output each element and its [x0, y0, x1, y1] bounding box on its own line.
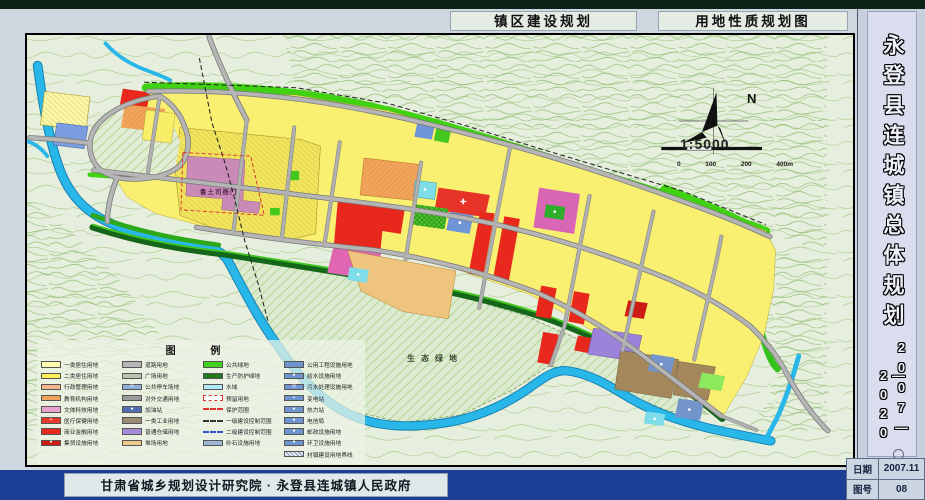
legend-label: 公共绿地 — [226, 360, 249, 369]
legend-column: 公用工程设施用地●给水设施用地◎污水处理设施用地+变电站●热力站●电信局●邮政设… — [284, 359, 361, 460]
legend-swatch: ● — [284, 428, 304, 435]
legend-column: 道路用地广场用地P公共停车场地对外交通用地●加油站一类工业用地普通仓储用地堆场用… — [122, 359, 199, 460]
legend-item: 水域 — [203, 381, 280, 392]
drawing-title-vertical: 永登县连城镇总体规划 — [877, 34, 907, 334]
legend: 图 例 一类居住用地二类居住用地行政管理用地教育机构用地文体科技用地+医疗保健用… — [37, 340, 365, 464]
legend-swatch: P — [122, 384, 142, 391]
legend-title: 图 例 — [41, 342, 361, 357]
legend-label: 道路用地 — [145, 360, 168, 369]
legend-item: 公共绿地 — [203, 359, 280, 370]
legend-item: 道路用地 — [122, 359, 199, 370]
legend-item: ●热力站 — [284, 404, 361, 415]
legend-swatch — [203, 361, 223, 368]
legend-swatch: ◎ — [284, 384, 304, 391]
legend-swatch — [122, 373, 142, 380]
title-box-plan: 镇区建设规划 — [450, 11, 637, 31]
legend-swatch — [41, 384, 61, 391]
north-label: N — [747, 91, 756, 106]
legend-swatch: ● — [284, 417, 304, 424]
legend-swatch — [203, 395, 223, 402]
scale-tick: 200 — [741, 161, 752, 168]
legend-label: 普通仓储用地 — [145, 427, 179, 436]
legend-item: 堆场用地 — [122, 437, 199, 448]
legend-label: 教育机构用地 — [64, 394, 98, 403]
sheet-number-value: 08 — [879, 480, 924, 500]
legend-label: 邮政设施用地 — [307, 427, 341, 436]
legend-label: 集贸设施用地 — [64, 439, 98, 448]
legend-label: 二级建设控制范围 — [226, 427, 272, 436]
legend-item: 商业金融用地 — [41, 426, 118, 437]
legend-label: 环卫设施用地 — [307, 439, 341, 448]
legend-swatch — [203, 408, 223, 410]
legend-item: +变电站 — [284, 393, 361, 404]
planning-map-frame: 鲁土司衙门 生态绿地 N 1:5000 0100200400m 图 例 一类居住… — [25, 33, 855, 467]
legend-label: 村镇建设用地界线 — [307, 450, 353, 459]
legend-label: 对外交通用地 — [145, 394, 179, 403]
legend-item: 普通仓储用地 — [122, 426, 199, 437]
legend-item: 预留用地 — [203, 393, 280, 404]
legend-item: 保护范围 — [203, 404, 280, 415]
legend-swatch — [122, 428, 142, 435]
legend-label: 给水设施用地 — [307, 372, 341, 381]
sidebar-title-panel: 永登县连城镇总体规划 2007— —2020 — [867, 11, 917, 457]
legend-label: 变电站 — [307, 394, 324, 403]
legend-swatch — [203, 384, 223, 391]
eco-green-label: 生态绿地 — [407, 353, 463, 364]
scale-bar-ticks: 0100200400m — [677, 161, 793, 168]
scale-tick: 400m — [776, 161, 793, 168]
legend-item: 生产防护绿地 — [203, 370, 280, 381]
legend-label: 二类居住用地 — [64, 372, 98, 381]
legend-item: 二级建设控制范围 — [203, 426, 280, 437]
legend-label: 热力站 — [307, 405, 324, 414]
legend-item: ··砂石设施用地 — [203, 437, 280, 448]
legend-label: 行政管理用地 — [64, 383, 98, 392]
legend-item: 广场用地 — [122, 370, 199, 381]
legend-item: ●集贸设施用地 — [41, 437, 118, 448]
legend-columns: 一类居住用地二类居住用地行政管理用地教育机构用地文体科技用地+医疗保健用地商业金… — [41, 359, 361, 460]
legend-swatch — [41, 373, 61, 380]
legend-item: 一级建设控制范围 — [203, 415, 280, 426]
legend-label: 商业金融用地 — [64, 427, 98, 436]
legend-item: P公共停车场地 — [122, 381, 199, 392]
scale-tick: 100 — [705, 161, 716, 168]
legend-label: 一级建设控制范围 — [226, 416, 272, 425]
legend-item: ●邮政设施用地 — [284, 426, 361, 437]
legend-label: 一类工业用地 — [145, 416, 179, 425]
legend-item: 教育机构用地 — [41, 393, 118, 404]
legend-swatch — [122, 395, 142, 402]
legend-item: 二类居住用地 — [41, 370, 118, 381]
legend-label: 水域 — [226, 383, 237, 392]
legend-label: 广场用地 — [145, 372, 168, 381]
legend-item: 文体科技用地 — [41, 404, 118, 415]
legend-item: +医疗保健用地 — [41, 415, 118, 426]
legend-label: 加油站 — [145, 405, 162, 414]
legend-item: 公用工程设施用地 — [284, 359, 361, 370]
legend-swatch: ● — [284, 440, 304, 447]
legend-swatch — [203, 420, 223, 422]
legend-item: ●电信局 — [284, 415, 361, 426]
legend-column: 公共绿地生产防护绿地水域预留用地保护范围一级建设控制范围二级建设控制范围··砂石… — [203, 359, 280, 460]
legend-item: 村镇建设用地界线 — [284, 449, 361, 460]
legend-swatch: ● — [284, 406, 304, 413]
legend-item: 一类工业用地 — [122, 415, 199, 426]
date-label: 日期 — [847, 459, 878, 479]
legend-item: ●加油站 — [122, 404, 199, 415]
legend-swatch — [41, 406, 61, 413]
top-border-strip — [0, 0, 925, 9]
legend-item: ●环卫设施用地 — [284, 437, 361, 448]
legend-item: 对外交通用地 — [122, 393, 199, 404]
legend-column: 一类居住用地二类居住用地行政管理用地教育机构用地文体科技用地+医疗保健用地商业金… — [41, 359, 118, 460]
legend-swatch: ·· — [203, 440, 223, 447]
legend-label: 堆场用地 — [145, 439, 168, 448]
legend-swatch — [122, 417, 142, 424]
legend-label: 公用工程设施用地 — [307, 360, 353, 369]
legend-swatch: + — [41, 417, 61, 424]
legend-label: 预留用地 — [226, 394, 249, 403]
legend-swatch: ● — [122, 406, 142, 413]
plan-period-end: —2020 — [876, 368, 906, 456]
legend-label: 电信局 — [307, 416, 324, 425]
legend-swatch — [122, 440, 142, 447]
legend-item: 一类居住用地 — [41, 359, 118, 370]
legend-label: 砂石设施用地 — [226, 439, 260, 448]
legend-swatch — [41, 361, 61, 368]
legend-label: 医疗保健用地 — [64, 416, 98, 425]
legend-item: ●给水设施用地 — [284, 370, 361, 381]
legend-label: 一类居住用地 — [64, 360, 98, 369]
legend-swatch — [41, 428, 61, 435]
legend-swatch — [203, 431, 223, 433]
title-block-table: 日期 2007.11 图号 08 — [846, 458, 925, 500]
footer-bar: 甘肃省城乡规划设计研究院 · 永登县连城镇人民政府 — [0, 470, 846, 500]
legend-swatch — [284, 451, 304, 458]
legend-label: 公共停车场地 — [145, 383, 179, 392]
sheet-number-label: 图号 — [847, 480, 878, 500]
legend-label: 保护范围 — [226, 405, 249, 414]
legend-swatch — [203, 373, 223, 380]
legend-label: 文体科技用地 — [64, 405, 98, 414]
legend-swatch: ● — [284, 373, 304, 380]
historic-site-label: 鲁土司衙门 — [200, 186, 238, 196]
legend-swatch — [122, 361, 142, 368]
legend-swatch: + — [284, 395, 304, 402]
legend-label: 生产防护绿地 — [226, 372, 260, 381]
legend-item: ◎污水处理设施用地 — [284, 381, 361, 392]
legend-label: 污水处理设施用地 — [307, 383, 353, 392]
title-box-landuse: 用地性质规划图 — [658, 11, 848, 31]
sidebar: 永登县连城镇总体规划 2007— —2020 — [857, 9, 925, 500]
scale-tick: 0 — [677, 161, 681, 168]
date-value: 2007.11 — [879, 459, 924, 479]
legend-swatch — [41, 395, 61, 402]
legend-swatch — [284, 361, 304, 368]
legend-swatch: ● — [41, 440, 61, 447]
credit-box: 甘肃省城乡规划设计研究院 · 永登县连城镇人民政府 — [64, 473, 448, 497]
legend-item: 行政管理用地 — [41, 381, 118, 392]
scale-text: 1:5000 — [680, 136, 730, 152]
